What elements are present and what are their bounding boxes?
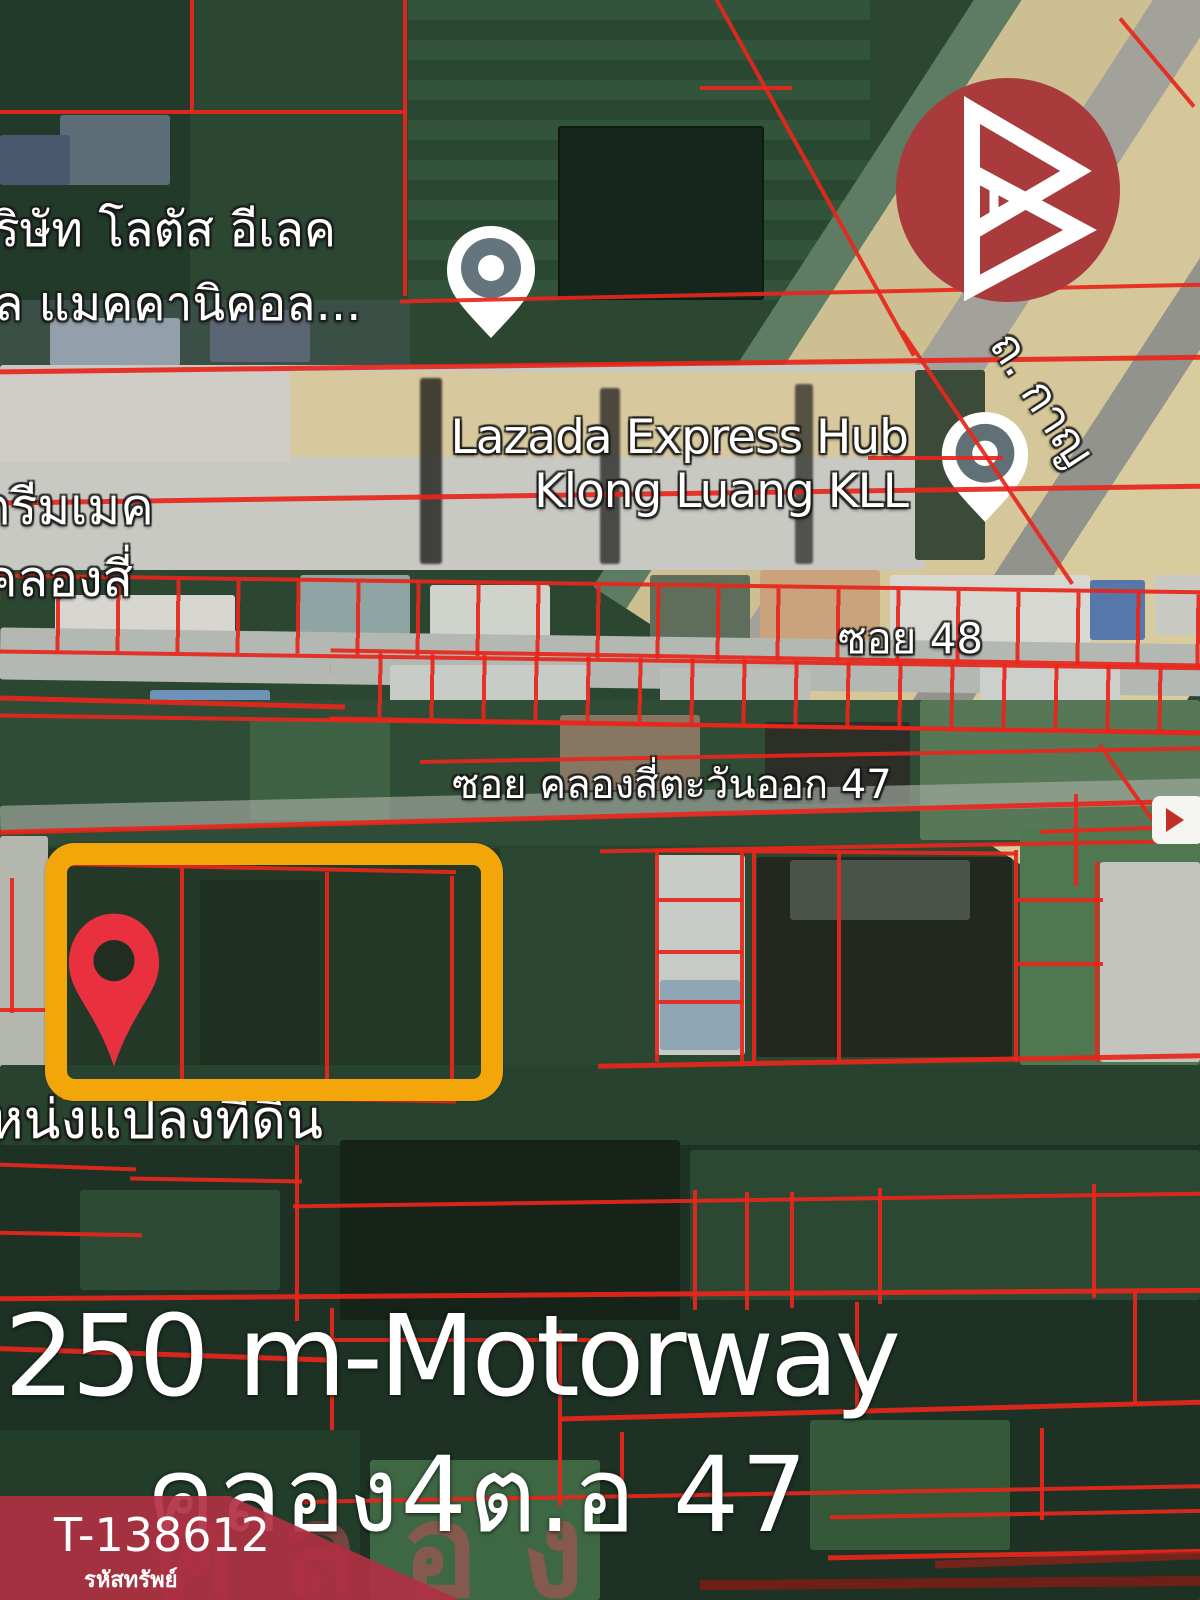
- parcel-line: [708, 0, 915, 357]
- dream-label-line2: คลองสี่: [0, 540, 133, 619]
- parcel-line: [752, 852, 756, 1062]
- parcel-line: [655, 852, 659, 1062]
- parcel-line: [1017, 898, 1103, 902]
- property-id-caption: รหัสทรัพย์: [84, 1562, 177, 1597]
- parcel-line: [830, 1509, 1200, 1520]
- parcel-line: [1133, 1292, 1137, 1404]
- parcel-line: [0, 1163, 136, 1172]
- parcel-line: [1017, 962, 1103, 966]
- dream-label-line1: ดรีมเมค: [0, 468, 154, 547]
- company-label-line1: ริษัท โลตัส อีเลค: [0, 192, 336, 268]
- parcel-line: [0, 1008, 46, 1012]
- plot-pin[interactable]: [65, 908, 163, 1076]
- company-label-line2: ล แมคคานิคอล...: [0, 266, 361, 342]
- parcel-line: [1095, 862, 1099, 1062]
- soi48-road-label: ซอย 48: [838, 606, 983, 672]
- road-sign-glyph: [1166, 808, 1184, 832]
- parcel-line: [1092, 1184, 1096, 1298]
- road-sign-icon: [1152, 796, 1200, 844]
- lazada-label-line1: Lazada Express Hub: [330, 410, 908, 465]
- parcel-line: [130, 1176, 302, 1183]
- parcel-line: [878, 1188, 882, 1304]
- parcel-line: [190, 0, 194, 112]
- parcel-line: [598, 1052, 1200, 1069]
- parcel-line: [657, 950, 743, 954]
- lazada-label-line2: Klong Luang KLL: [330, 464, 908, 519]
- parcel-line: [1040, 1428, 1044, 1520]
- brand-logo-mark: [896, 78, 1120, 302]
- parcel-line: [740, 852, 744, 1062]
- distance-annotation: 250 m-Motorway: [4, 1292, 897, 1422]
- parcel-line: [657, 898, 743, 902]
- parcel-line: [0, 110, 406, 114]
- parcel-line: [657, 1000, 743, 1004]
- parcel-line: [403, 0, 407, 296]
- brand-logo[interactable]: [896, 78, 1120, 302]
- parcel-line: [1014, 850, 1018, 1062]
- parcel-line: [655, 848, 1017, 855]
- parcel-line: [1119, 17, 1196, 108]
- parcel-line: [700, 1576, 1200, 1590]
- parcel-line: [1098, 744, 1157, 827]
- parcel-line: [10, 878, 14, 1013]
- parcel-line: [0, 695, 345, 709]
- parcel-line: [700, 86, 792, 90]
- soi47-road-label: ซอย คลองสี่ตะวันออก 47: [452, 752, 892, 816]
- parcel-line: [837, 852, 841, 1062]
- satellite-map: ริษัท โลตัส อีเลค ล แมคคานิคอล... Lazada…: [0, 0, 1200, 1600]
- property-id: T-138612: [54, 1508, 270, 1562]
- parcel-line: [0, 1231, 142, 1237]
